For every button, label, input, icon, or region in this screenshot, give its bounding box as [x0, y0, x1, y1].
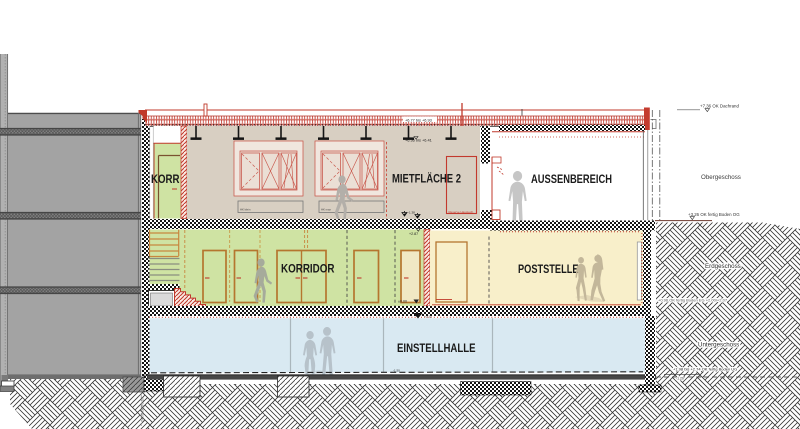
- svg-text:Erdgeschoss: Erdgeschoss: [705, 263, 741, 270]
- svg-text:+3.26 OK fertig Boden OG: +3.26 OK fertig Boden OG: [688, 212, 740, 217]
- svg-text:+2.87: +2.87: [409, 232, 418, 236]
- svg-text:-1.50: -1.50: [393, 369, 400, 373]
- svg-text:KORRIDOR: KORRIDOR: [281, 262, 335, 276]
- svg-text:±0.00: ±0.00: [398, 300, 407, 304]
- svg-text:MIETFLÄCHE 2: MIETFLÄCHE 2: [392, 171, 461, 186]
- svg-text:-1.38: -1.38: [408, 211, 415, 215]
- svg-text:POSTSTELLE: POSTSTELLE: [518, 262, 579, 276]
- svg-text:+6.77 bis +6.93: +6.77 bis +6.93: [405, 117, 432, 122]
- svg-text:Untergeschoss: Untergeschoss: [698, 342, 739, 349]
- svg-text:+0.96 OK fertig Boden EG +2.00: +0.96 OK fertig Boden EG +2.00/+2.07: [658, 298, 728, 303]
- svg-text:+7.36 OK Dachrand: +7.36 OK Dachrand: [700, 104, 739, 109]
- svg-text:AUSSENBEREICH: AUSSENBEREICH: [531, 172, 612, 186]
- svg-text:Obergeschoss: Obergeschoss: [701, 174, 741, 181]
- svg-text:HK klein: HK klein: [240, 208, 251, 212]
- svg-text:+0.12: +0.12: [424, 315, 432, 319]
- svg-text:EINSTELLHALLE: EINSTELLHALLE: [397, 341, 476, 355]
- svg-text:HK max: HK max: [321, 208, 332, 212]
- svg-text:+1.98 bis +2.74 OK fertig Bode: +1.98 bis +2.74 OK fertig Boden UG: [673, 366, 737, 371]
- svg-text:-1.20: -1.20: [676, 377, 684, 381]
- svg-text:Reserve Haustech.: Reserve Haustech.: [449, 210, 475, 214]
- svg-text:KORR: KORR: [151, 172, 180, 186]
- svg-text:Gebäudegrenze: Gebäudegrenze: [141, 397, 145, 422]
